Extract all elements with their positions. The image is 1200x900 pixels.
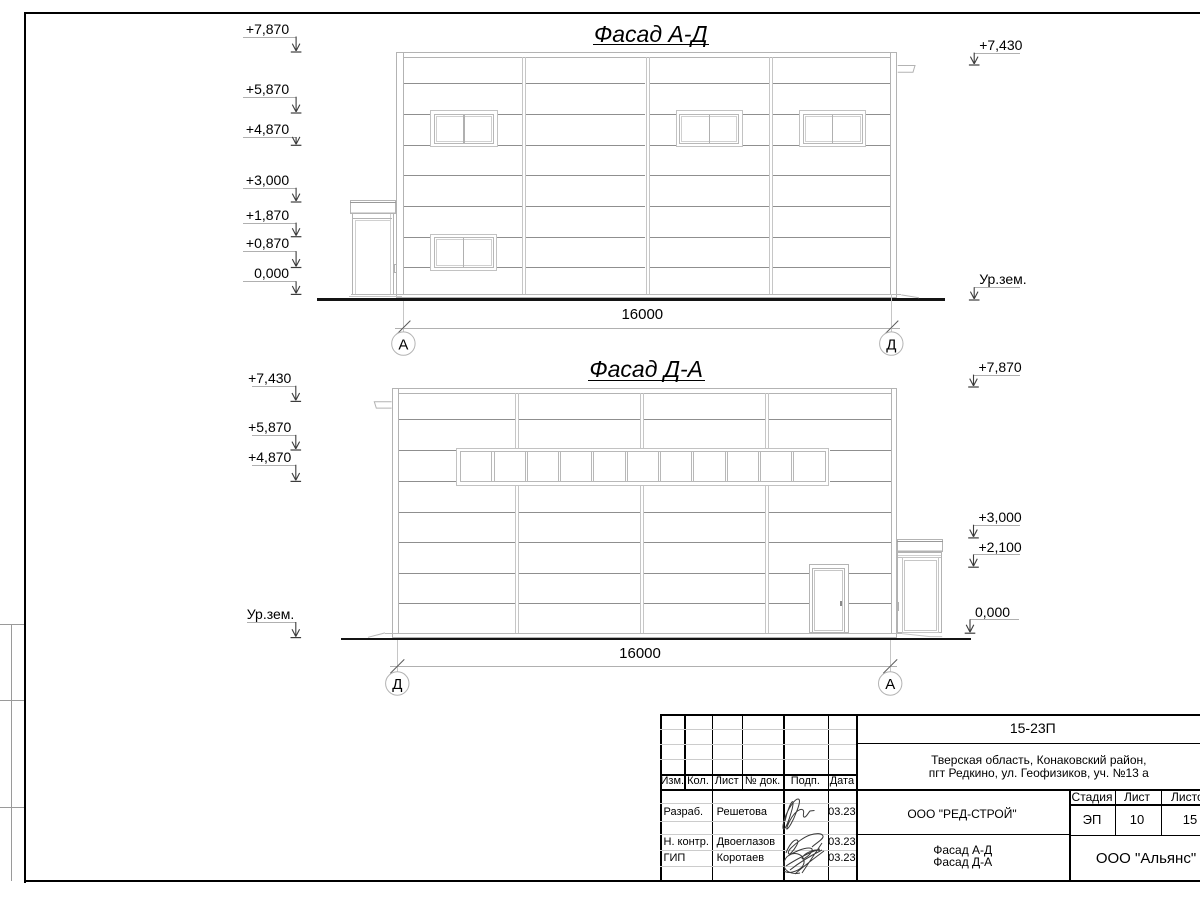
svg-text:Д: Д (886, 336, 896, 353)
svg-text:Д: Д (392, 676, 402, 693)
svg-text:А: А (885, 676, 895, 693)
svg-text:А: А (398, 336, 408, 353)
